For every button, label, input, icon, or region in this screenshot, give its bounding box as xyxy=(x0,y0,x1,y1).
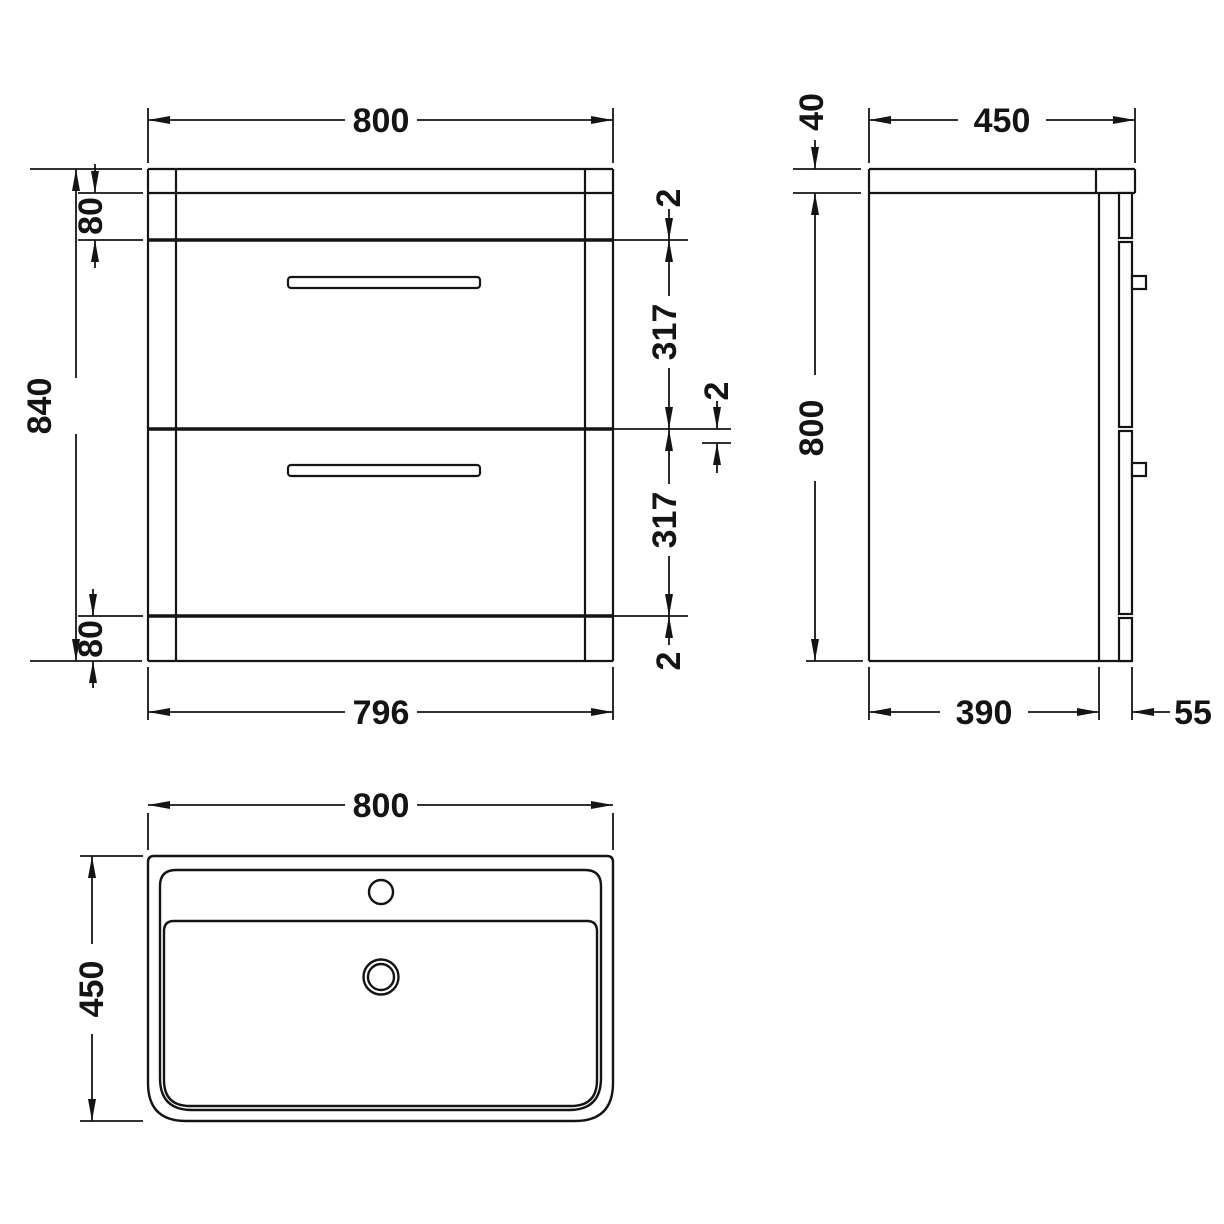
waste-drain-inner xyxy=(368,964,394,990)
dim-label-front-top-rail: 80 xyxy=(72,197,110,235)
dim-label-front-bottom-rail: 80 xyxy=(72,620,110,658)
side-drawer-1-front xyxy=(1119,242,1132,427)
dim-label-front-panel-depth: 55 xyxy=(1174,694,1212,732)
dim-label-gap-middle: 2 xyxy=(698,382,736,401)
dim-label-gap-top: 2 xyxy=(650,189,688,208)
side-view: 40 800 450 390 55 xyxy=(793,93,1212,732)
dim-label-front-overall-height: 840 xyxy=(21,378,59,435)
dim-label-basin-width: 800 xyxy=(353,787,410,825)
drawer-2-handle xyxy=(288,465,480,476)
technical-drawing: 800 840 80 80 xyxy=(0,0,1224,1224)
plan-dim-basin-width: 800 xyxy=(148,787,613,850)
dim-label-cabinet-height: 800 xyxy=(793,400,831,457)
side-bottom-rail-front xyxy=(1119,618,1132,661)
front-dim-width-top: 800 xyxy=(148,102,613,163)
side-dim-cabinet-height: 800 xyxy=(793,193,863,661)
side-drawer-2-front xyxy=(1119,431,1132,614)
dim-label-front-width-top: 800 xyxy=(353,102,410,140)
front-dim-overall-height: 840 xyxy=(21,169,142,661)
dim-label-carcass-depth: 390 xyxy=(956,694,1013,732)
dim-label-drawer-2-height: 317 xyxy=(646,492,684,549)
side-top-rail-front xyxy=(1119,193,1132,238)
side-dim-worktop-thickness: 40 xyxy=(793,93,861,193)
side-drawer-2-handle xyxy=(1132,463,1146,476)
basin-bowl-edge xyxy=(164,921,597,1106)
drawer-1-handle xyxy=(288,277,480,288)
front-view: 800 840 80 80 xyxy=(21,102,736,732)
front-dim-top-rail: 80 xyxy=(72,164,143,268)
front-dim-width-bottom: 796 xyxy=(148,667,613,732)
side-dim-overall-depth: 450 xyxy=(869,102,1135,163)
basin-outer-edge xyxy=(148,856,613,1121)
dim-label-worktop-thickness: 40 xyxy=(793,93,831,131)
dim-label-front-width-bottom: 796 xyxy=(353,694,410,732)
drawing-sheet: 800 840 80 80 xyxy=(0,0,1224,1224)
side-drawer-1-handle xyxy=(1132,276,1146,289)
dim-label-gap-bottom: 2 xyxy=(650,652,688,671)
front-dim-right-chain: 2 317 2 317 2 xyxy=(613,189,736,671)
dim-label-drawer-1-height: 317 xyxy=(646,304,684,361)
side-dim-bottom: 390 55 xyxy=(869,667,1212,732)
plan-dim-basin-depth: 450 xyxy=(73,856,143,1121)
tap-hole xyxy=(369,880,393,904)
dim-label-basin-depth: 450 xyxy=(73,961,111,1018)
dim-label-overall-depth: 450 xyxy=(974,102,1031,140)
front-dim-bottom-rail: 80 xyxy=(72,589,143,688)
plan-view: 800 450 xyxy=(73,787,613,1121)
